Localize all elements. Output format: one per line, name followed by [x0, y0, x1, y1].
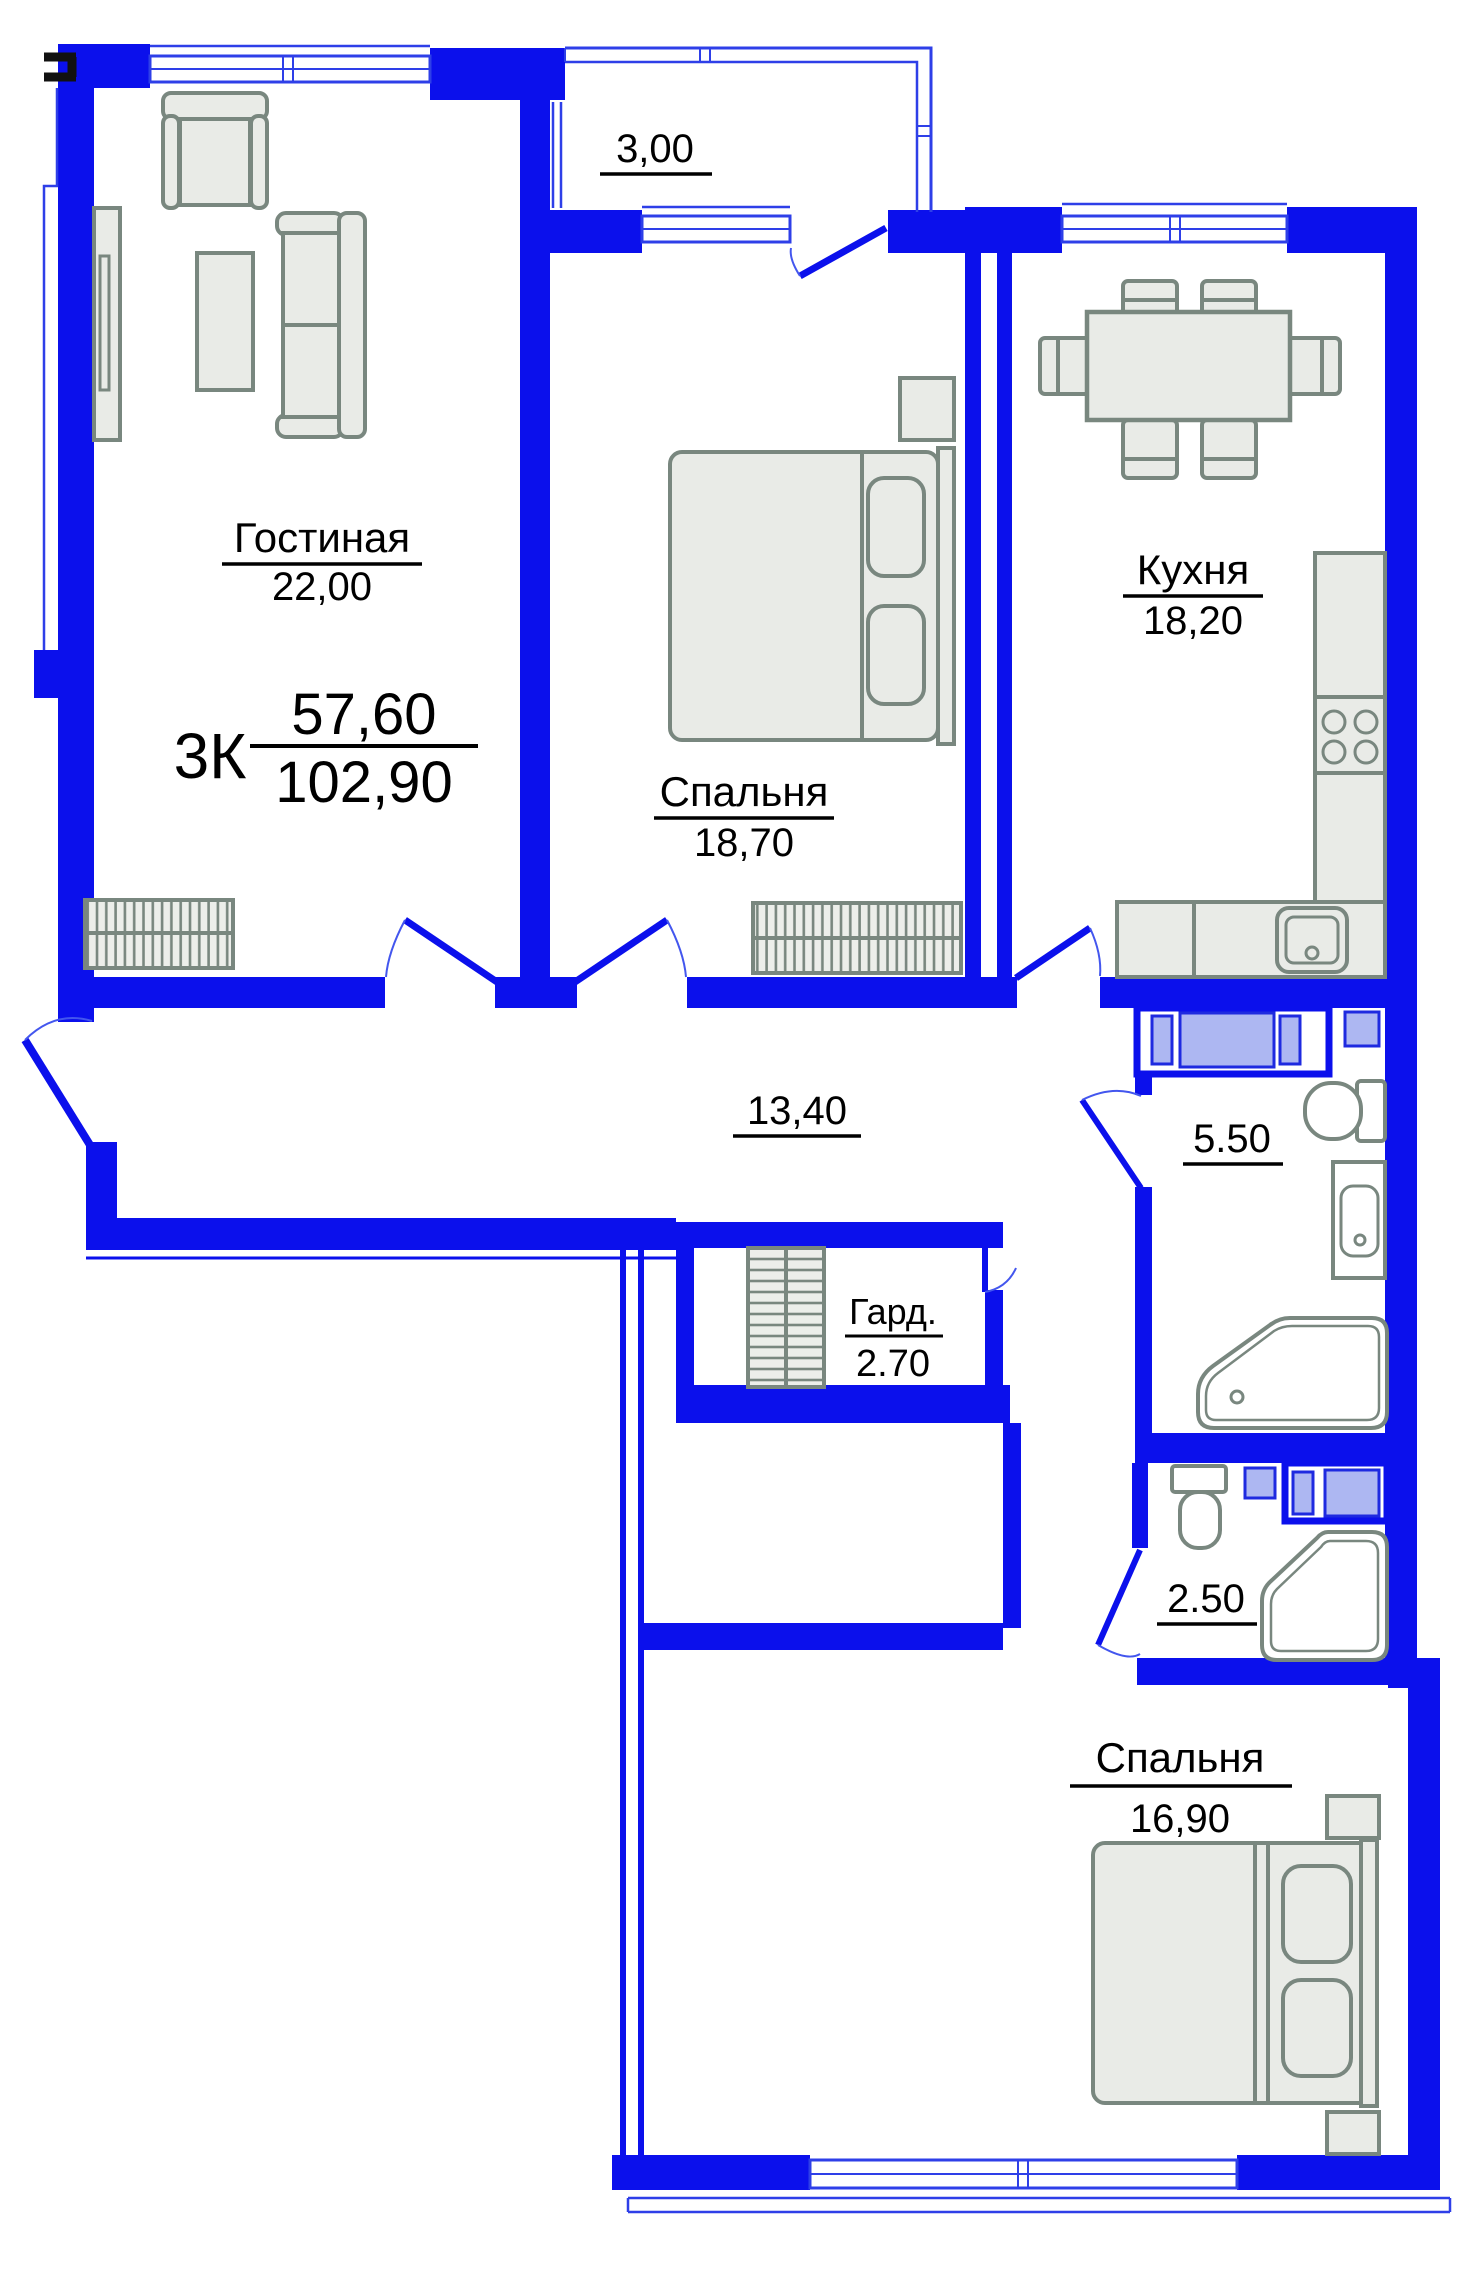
pillow	[868, 478, 924, 576]
wall	[644, 1623, 1003, 1650]
exterior-contour	[44, 88, 57, 650]
duct-wall	[965, 210, 981, 980]
room-label: Спальня	[1096, 1734, 1265, 1781]
wall	[495, 977, 577, 1008]
furniture-layer	[85, 93, 1387, 2154]
wardrobe-shelf	[748, 1248, 824, 1387]
radiator-living	[85, 900, 233, 968]
coffee-table	[197, 253, 253, 390]
wall	[550, 210, 642, 253]
dining-chair	[1284, 338, 1340, 394]
window-living	[150, 46, 430, 82]
wall	[1100, 977, 1417, 1008]
balcony-door-frame	[553, 102, 561, 208]
room-area: 2.50	[1167, 1577, 1245, 1621]
wall	[687, 977, 1017, 1008]
washing-machine-unit-wc	[1285, 1463, 1387, 1521]
wall	[58, 44, 94, 1010]
toilet-bathroom	[1305, 1081, 1385, 1141]
door-living	[386, 920, 497, 982]
wall	[612, 2155, 810, 2190]
wall	[641, 1230, 671, 1250]
nightstand	[1327, 2112, 1379, 2154]
dining-table	[1087, 312, 1290, 420]
door-entrance	[25, 1018, 92, 1145]
pillow	[868, 606, 924, 704]
wall	[1408, 1685, 1440, 2190]
room-label: Кухня	[1137, 546, 1249, 593]
kitchen-counter-right	[1315, 553, 1385, 902]
pillow	[1283, 1866, 1351, 1962]
floor-plan: Гостиная 22,00 3К 57,60 102,90 Спальня 1…	[0, 0, 1470, 2289]
window-bedroom1	[642, 207, 790, 242]
nightstand	[1327, 1796, 1379, 1838]
room-area: 5.50	[1193, 1117, 1271, 1161]
dining-chair	[1123, 420, 1177, 478]
vent-shaft	[1345, 1012, 1379, 1046]
room-area: 13,40	[747, 1089, 847, 1133]
room-area: 18,70	[694, 821, 794, 865]
headboard	[938, 448, 954, 744]
floor-plan-page: Гостиная 22,00 3К 57,60 102,90 Спальня 1…	[0, 0, 1470, 2289]
wall	[1135, 1187, 1152, 1433]
room-label: Спальня	[660, 768, 829, 815]
radiator-bedroom1	[753, 903, 961, 973]
wall	[1003, 1423, 1021, 1628]
pillow	[1283, 1980, 1351, 2076]
headboard	[1361, 1840, 1377, 2106]
room-label: Гостиная	[234, 514, 410, 561]
room-label: Гард.	[849, 1291, 937, 1332]
wall	[676, 1222, 1003, 1248]
room-area: 16,90	[1130, 1797, 1230, 1841]
toilet-wc	[1172, 1466, 1226, 1548]
tv-stand	[94, 208, 120, 440]
wall	[676, 1385, 1010, 1423]
bathtub	[1198, 1318, 1387, 1428]
living-area-value: 57,60	[291, 682, 436, 747]
room-area: 2.70	[856, 1343, 930, 1385]
wall	[1388, 1658, 1440, 1688]
vent-shaft	[1245, 1468, 1275, 1498]
kitchen-counter-bottom	[1117, 902, 1385, 977]
washbasin	[1333, 1162, 1385, 1278]
washing-machine-unit-bathroom	[1137, 1008, 1329, 1074]
wall	[1135, 1433, 1388, 1463]
duct-wall	[997, 210, 1012, 980]
wall	[1137, 1658, 1388, 1685]
shower	[1262, 1532, 1387, 1660]
door-bathroom	[1082, 1091, 1141, 1188]
wall	[888, 210, 965, 253]
bed-bedroom1	[670, 448, 954, 744]
room-area: 18,20	[1143, 599, 1243, 643]
apartment-type: 3К	[174, 720, 247, 792]
room-area: 3,00	[616, 127, 694, 171]
wall	[58, 977, 385, 1008]
wall-pier	[34, 650, 60, 698]
door-kitchen	[1016, 928, 1100, 978]
bed-bedroom2	[1093, 1840, 1377, 2106]
wall	[430, 48, 565, 100]
wall	[1132, 1463, 1148, 1548]
nightstand	[900, 378, 954, 440]
wall	[86, 1218, 676, 1250]
armchair	[163, 93, 267, 208]
door-balcony	[791, 228, 886, 276]
wall	[1237, 2155, 1440, 2190]
door-wc	[1098, 1550, 1140, 1657]
wall	[985, 1290, 1003, 1385]
room-area: 22,00	[272, 565, 372, 609]
total-area-value: 102,90	[275, 750, 452, 815]
wall	[520, 100, 550, 977]
dining-chair	[1202, 420, 1256, 478]
sofa	[277, 213, 365, 437]
door-bedroom1	[575, 920, 686, 982]
window-kitchen	[1062, 204, 1287, 242]
